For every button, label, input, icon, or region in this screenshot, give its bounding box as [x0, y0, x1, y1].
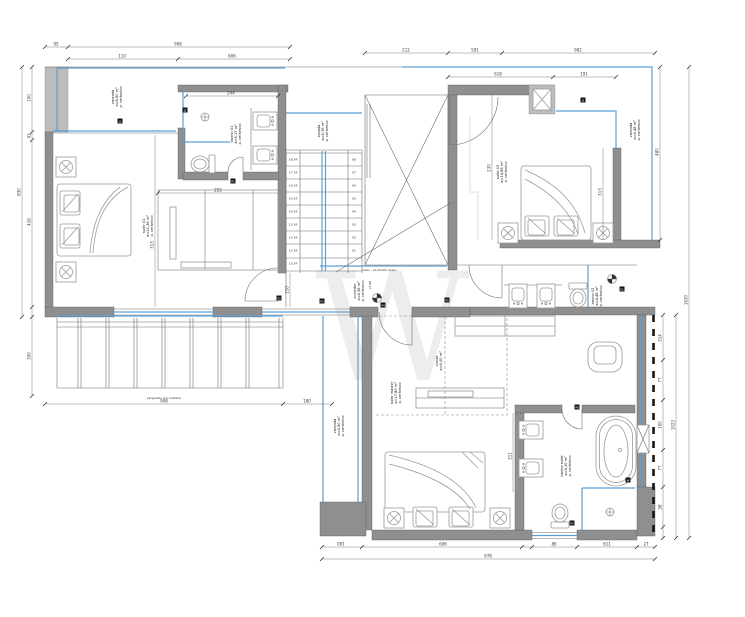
room-label: p. cerâmico [150, 215, 154, 236]
dimension-label: 606 [228, 54, 236, 59]
dimension-label: 416 [27, 218, 32, 226]
floor-plan-canvas: W [0, 0, 745, 617]
stair-step-label: 10 24 [289, 262, 297, 266]
dimension-label: 1023 [671, 419, 676, 430]
shower-drain-icon [606, 508, 614, 516]
dimension-label: 230 [487, 164, 492, 172]
dimension-label: 618 [494, 72, 502, 77]
dimension-label: 41 [27, 133, 32, 139]
stair-step-label: 17 24 [289, 171, 297, 175]
stair-step-label: 16 24 [289, 184, 297, 188]
stair-step-label: 12 24 [289, 236, 297, 240]
stair-step-label: 14 24 [289, 210, 297, 214]
suite-master-furniture [384, 452, 510, 528]
room-label: p. cerâmico [398, 382, 402, 403]
pillow-icon [60, 191, 80, 215]
bathtub [596, 416, 636, 486]
nightstand-lamp-icon [498, 223, 518, 243]
dimension-label: 830 [17, 188, 22, 196]
pillow-icon [60, 224, 80, 248]
dimension-label: 86 [551, 542, 557, 547]
tag-label: J1 [118, 119, 122, 123]
dimension-label: 091 [337, 542, 345, 547]
room-label: p. cerâmico [325, 120, 329, 141]
room-label: p. cerâmico [568, 455, 572, 476]
stair-step-number: 01 [352, 249, 356, 253]
stair-step-number: 07 [352, 171, 356, 175]
dimension-label: 611 [603, 542, 611, 547]
stair-step-number: 04 [352, 210, 356, 214]
room-label: p. cerâmico [361, 280, 365, 301]
nightstand-lamp-icon [56, 262, 76, 282]
tag-label: J4 [626, 478, 630, 482]
dimension-label: 77 [658, 465, 663, 471]
dimension-label: 180 [303, 399, 311, 404]
tag-label: P2 [277, 296, 281, 300]
dimension-label: 110 [285, 286, 290, 294]
dimension-label: 100 [658, 421, 663, 429]
room-label: p. cerâmico [637, 119, 641, 140]
dimension-label: 110 [118, 54, 126, 59]
bedroom-02-furniture [470, 116, 613, 243]
dimension-label: 95 [53, 42, 59, 47]
tag-label: P3 [320, 299, 324, 303]
shower-drain-icon [201, 113, 209, 121]
tag-label: P1 [231, 179, 235, 183]
sink-icon [519, 459, 543, 477]
dimension-label: 314 [658, 334, 663, 342]
level-datum-icon [373, 294, 382, 303]
toilet-icon [191, 155, 215, 173]
tag-label: E1 [620, 287, 624, 291]
toilet-icon [569, 283, 587, 307]
dimension-label: 982 [574, 48, 582, 53]
nightstand-lamp-icon [490, 508, 510, 528]
dimension-label: 191 [580, 72, 588, 77]
dimension-label: 313 [150, 241, 155, 249]
sink-icon [509, 284, 527, 308]
tag-label: J3 [581, 98, 585, 102]
room-label: p. cerâmico [599, 285, 603, 306]
room-label: p. cerâmico [341, 415, 345, 436]
stair-step-label: 18 24 [289, 158, 297, 162]
dimension-label: 606 [439, 542, 447, 547]
dimension-label: 978 [484, 554, 492, 559]
dimension-label: 908 [160, 399, 168, 404]
armchair [588, 342, 622, 372]
toilet-icon [551, 504, 569, 528]
stair-step-number: 05 [352, 197, 356, 201]
dimension-label: 300 [27, 352, 32, 360]
nightstand-lamp-icon [56, 157, 76, 177]
dimension-label: 212 [402, 48, 410, 53]
sink-icon [519, 421, 543, 439]
dimension-label: 311 [508, 452, 513, 460]
dimension-label: 908 [174, 42, 182, 47]
stair-step-number: 03 [352, 223, 356, 227]
bed-master [385, 452, 485, 512]
void-note: vazio - pé direito duplo [362, 268, 397, 272]
sink-icon [537, 284, 555, 308]
stair-step-number: 08 [352, 158, 356, 162]
dimension-label: 480 [655, 148, 660, 156]
dimension-label: 313 [598, 188, 603, 196]
room-label: p. cerâmico [119, 86, 123, 107]
stair-step-number: 06 [352, 184, 356, 188]
room-label: a=6,00 m² [439, 351, 443, 371]
level-datum-icon [608, 275, 617, 284]
dimension-label: 252 [214, 188, 222, 193]
dimension-label: 100 [27, 94, 32, 102]
dimension-label: 77 [658, 377, 663, 383]
dimension-label: 1630 [684, 294, 689, 305]
pergola: pergolado em madeira [57, 318, 283, 400]
dimension-label: 27 [643, 542, 649, 547]
nightstand-lamp-icon [384, 508, 404, 528]
dimension-label: 58 [658, 504, 663, 510]
stair-step-label: 15 24 [289, 197, 297, 201]
tag-label: P6 [575, 405, 579, 409]
pillow-icon [413, 507, 437, 527]
stair-step-label: 11 24 [289, 249, 297, 253]
dimension-label: 244 [227, 91, 235, 96]
stair-step-number: 02 [352, 236, 356, 240]
tag-label: J2 [183, 108, 187, 112]
pillow-icon [449, 507, 473, 527]
level-note: +2,88 [368, 281, 372, 290]
bath-master-fixtures [517, 416, 636, 528]
sink-icon [253, 112, 277, 130]
tag-label: P4 [381, 303, 385, 307]
room-label: p. cerâmico [238, 123, 242, 144]
floor-plan-sheet: W [0, 0, 745, 617]
stair-step-label: 13 24 [289, 223, 297, 227]
dimension-label: 591 [471, 48, 479, 53]
tag-label: P7 [570, 521, 574, 525]
room-label: p. cerâmico [504, 161, 508, 182]
pillow-icon [525, 216, 549, 236]
tag-label: P5 [445, 298, 449, 302]
sink-icon [253, 146, 277, 164]
